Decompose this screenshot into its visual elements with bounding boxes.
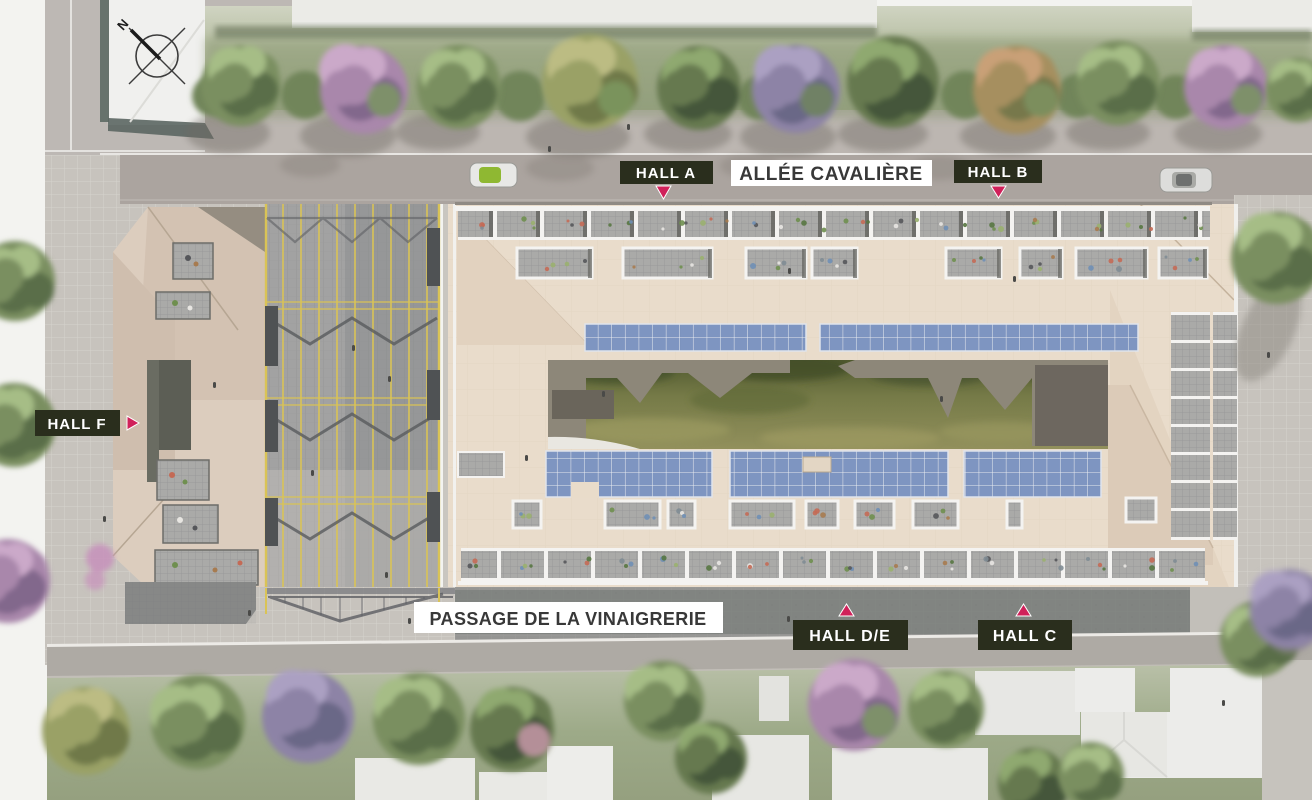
svg-text:HALL C: HALL C	[993, 628, 1057, 645]
svg-text:HALL B: HALL B	[968, 164, 1029, 181]
svg-text:ALLÉE CAVALIÈRE: ALLÉE CAVALIÈRE	[739, 163, 923, 185]
svg-text:HALL F: HALL F	[47, 416, 106, 433]
svg-text:HALL D/E: HALL D/E	[809, 628, 890, 645]
svg-text:PASSAGE DE LA VINAIGRERIE: PASSAGE DE LA VINAIGRERIE	[429, 609, 706, 629]
svg-text:HALL A: HALL A	[636, 165, 696, 182]
